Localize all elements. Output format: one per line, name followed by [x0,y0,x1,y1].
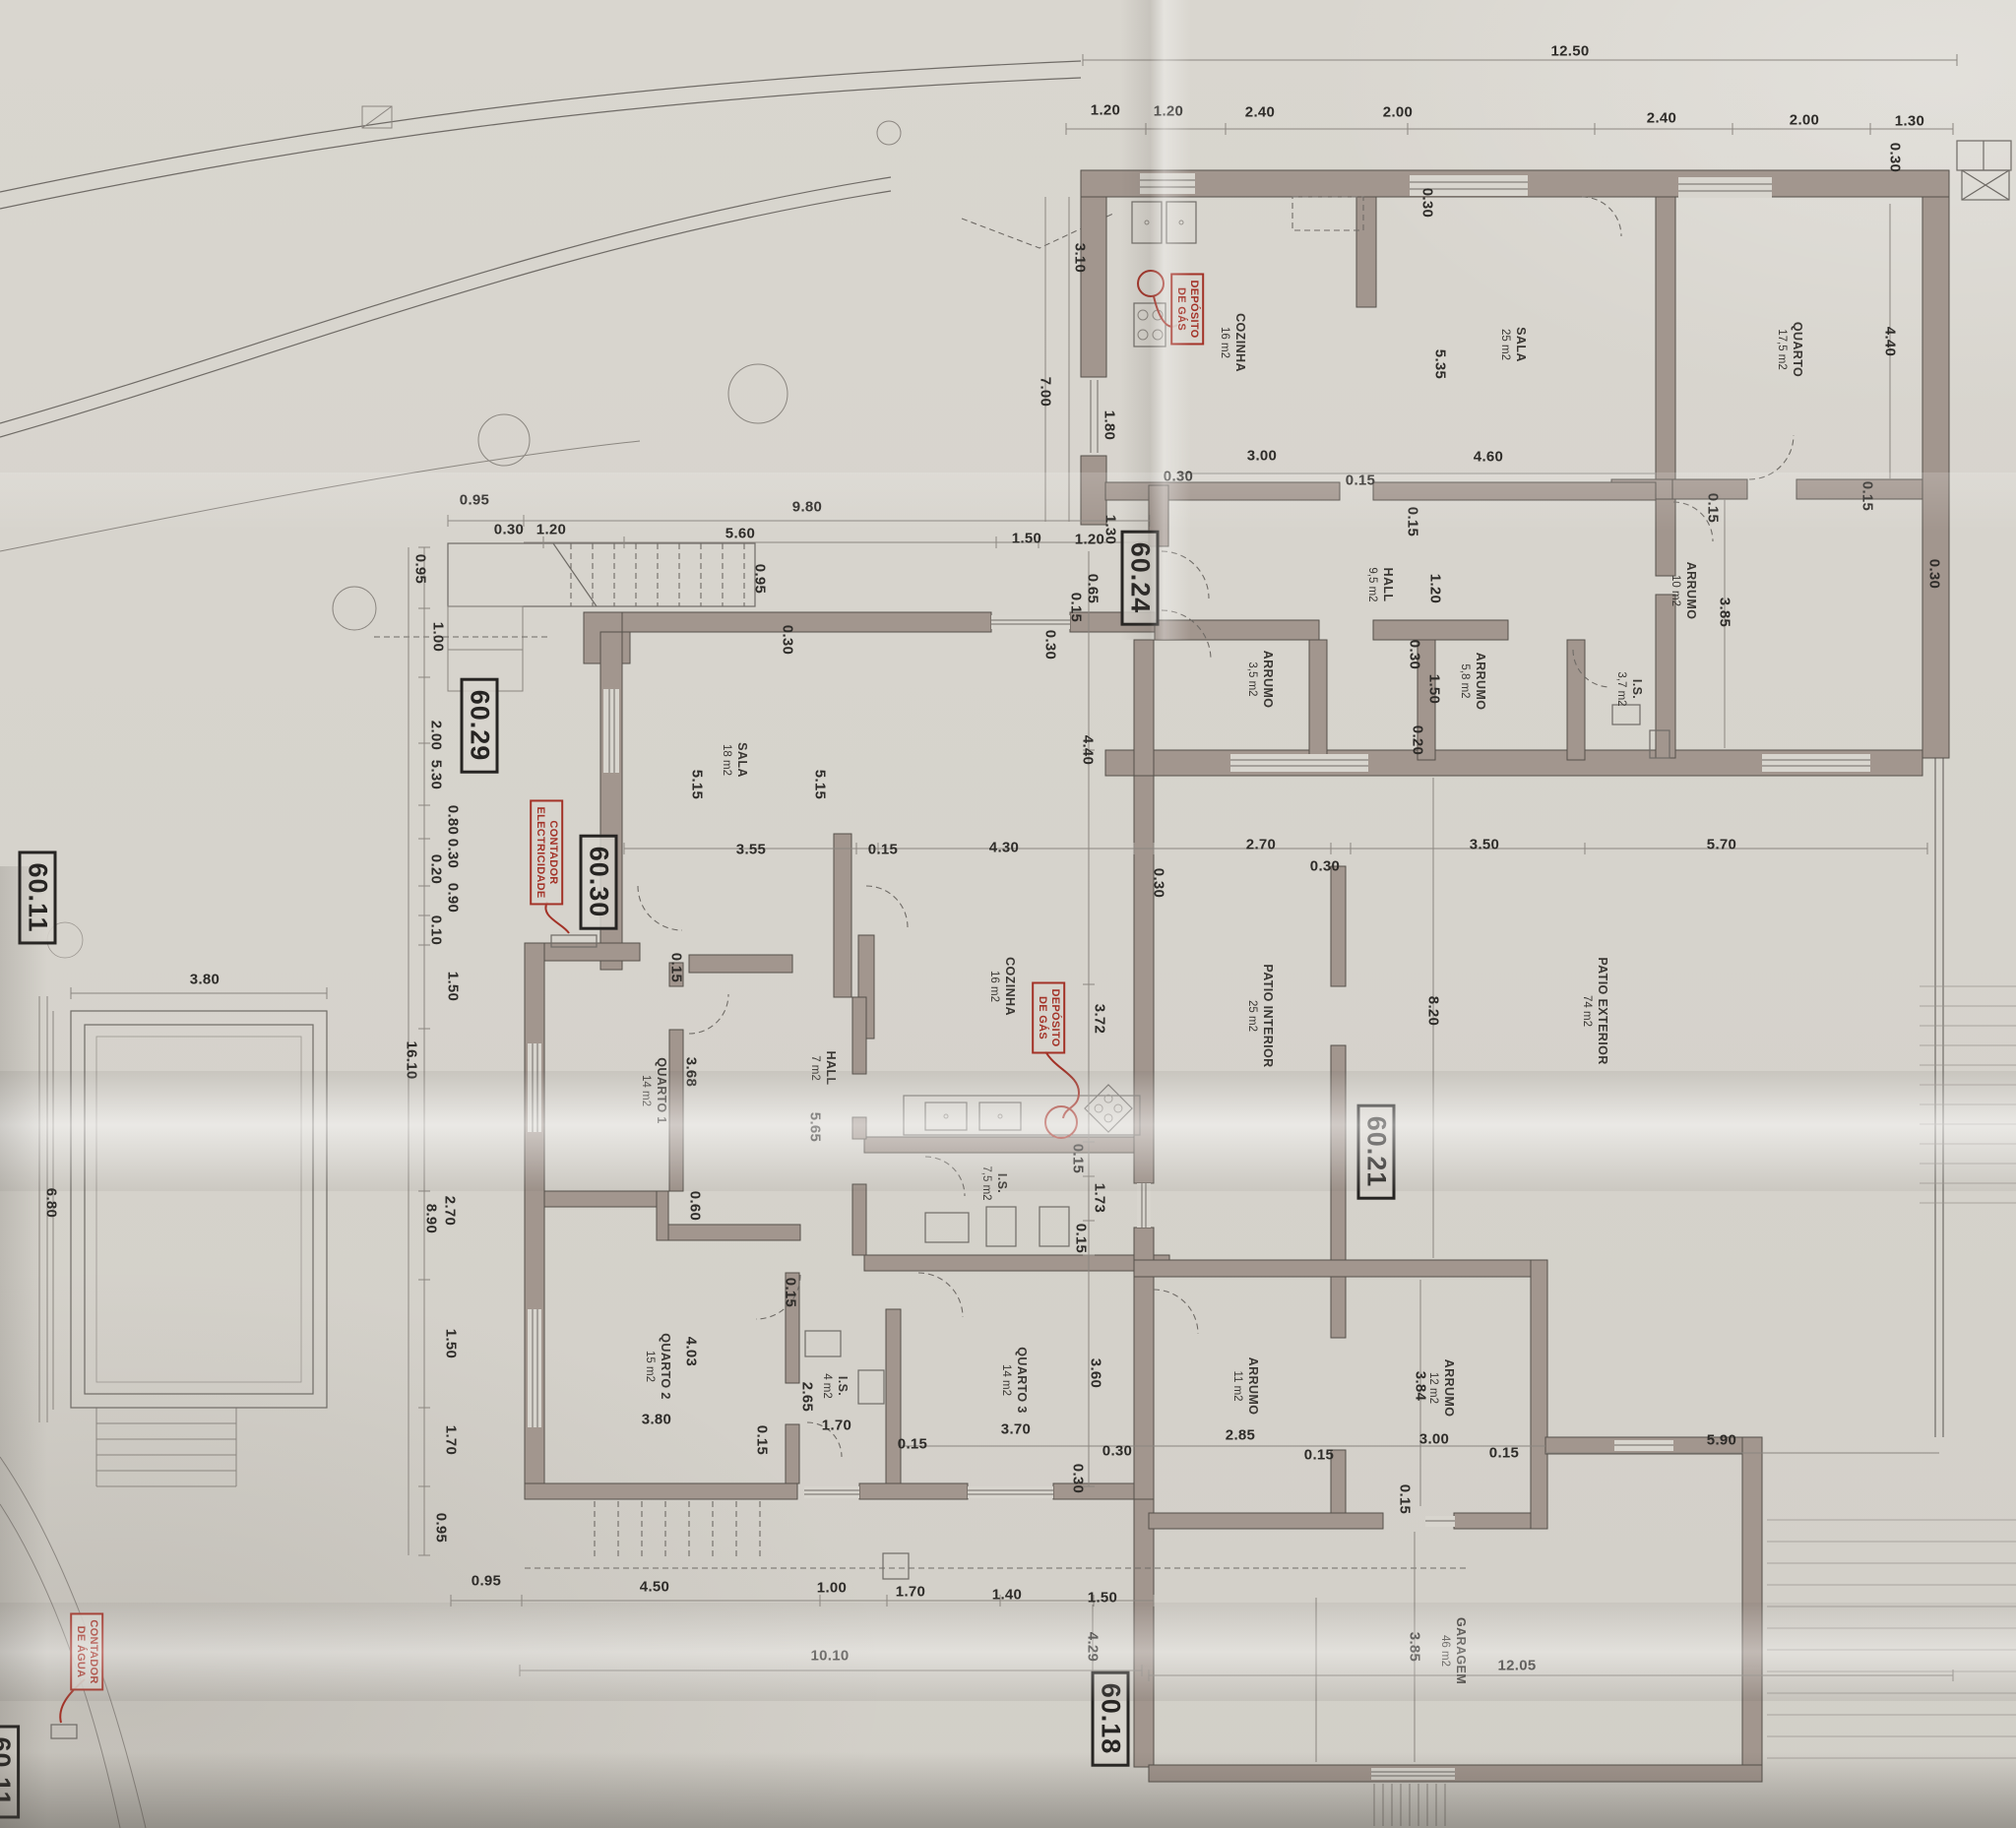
floor-plan-drawing [0,0,2016,1828]
floor-plan-sheet: 12.501.201.202.402.002.402.001.303.107.0… [0,0,2016,1828]
pool [71,1011,327,1408]
small-hatch-box [362,106,392,128]
walls-layer [525,170,1949,1782]
site-boundary-curves [0,61,1943,1828]
garden-steps [96,1408,236,1486]
flag-symbol [1957,141,2011,200]
site-circles [47,121,901,958]
red-annotations [60,271,1177,1723]
garage-ramp-hatch [1374,1784,1445,1826]
